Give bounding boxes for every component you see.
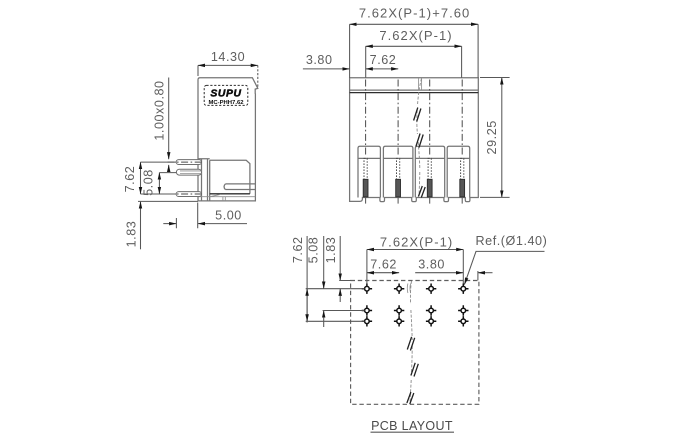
svg-text:3.80: 3.80 — [306, 53, 333, 67]
svg-text:7.62X(P-1): 7.62X(P-1) — [380, 234, 453, 249]
svg-text:Ref.(Ø1.40): Ref.(Ø1.40) — [476, 234, 548, 248]
svg-text:5.08: 5.08 — [142, 169, 156, 196]
svg-text:1.83: 1.83 — [324, 237, 338, 264]
svg-text:MC-PHH7.62: MC-PHH7.62 — [208, 100, 244, 106]
svg-text:14.30: 14.30 — [211, 50, 245, 64]
svg-text:7.62X(P-1)+7.60: 7.62X(P-1)+7.60 — [359, 6, 471, 21]
svg-text:7.62: 7.62 — [370, 257, 397, 271]
svg-text:5.00: 5.00 — [215, 208, 242, 222]
svg-text:7.62X(P-1): 7.62X(P-1) — [379, 28, 452, 43]
svg-text:5.08: 5.08 — [306, 237, 320, 264]
svg-text:SUPU: SUPU — [210, 89, 241, 100]
svg-text:3.80: 3.80 — [418, 257, 445, 271]
svg-text:7.62: 7.62 — [123, 166, 137, 193]
svg-text:PCB LAYOUT: PCB LAYOUT — [371, 419, 453, 433]
svg-text:7.62: 7.62 — [370, 53, 397, 67]
svg-text:1.00x0.80: 1.00x0.80 — [153, 80, 167, 140]
svg-text:1.83: 1.83 — [125, 221, 139, 248]
svg-text:29.25: 29.25 — [485, 120, 499, 154]
svg-text:7.62: 7.62 — [291, 236, 305, 263]
